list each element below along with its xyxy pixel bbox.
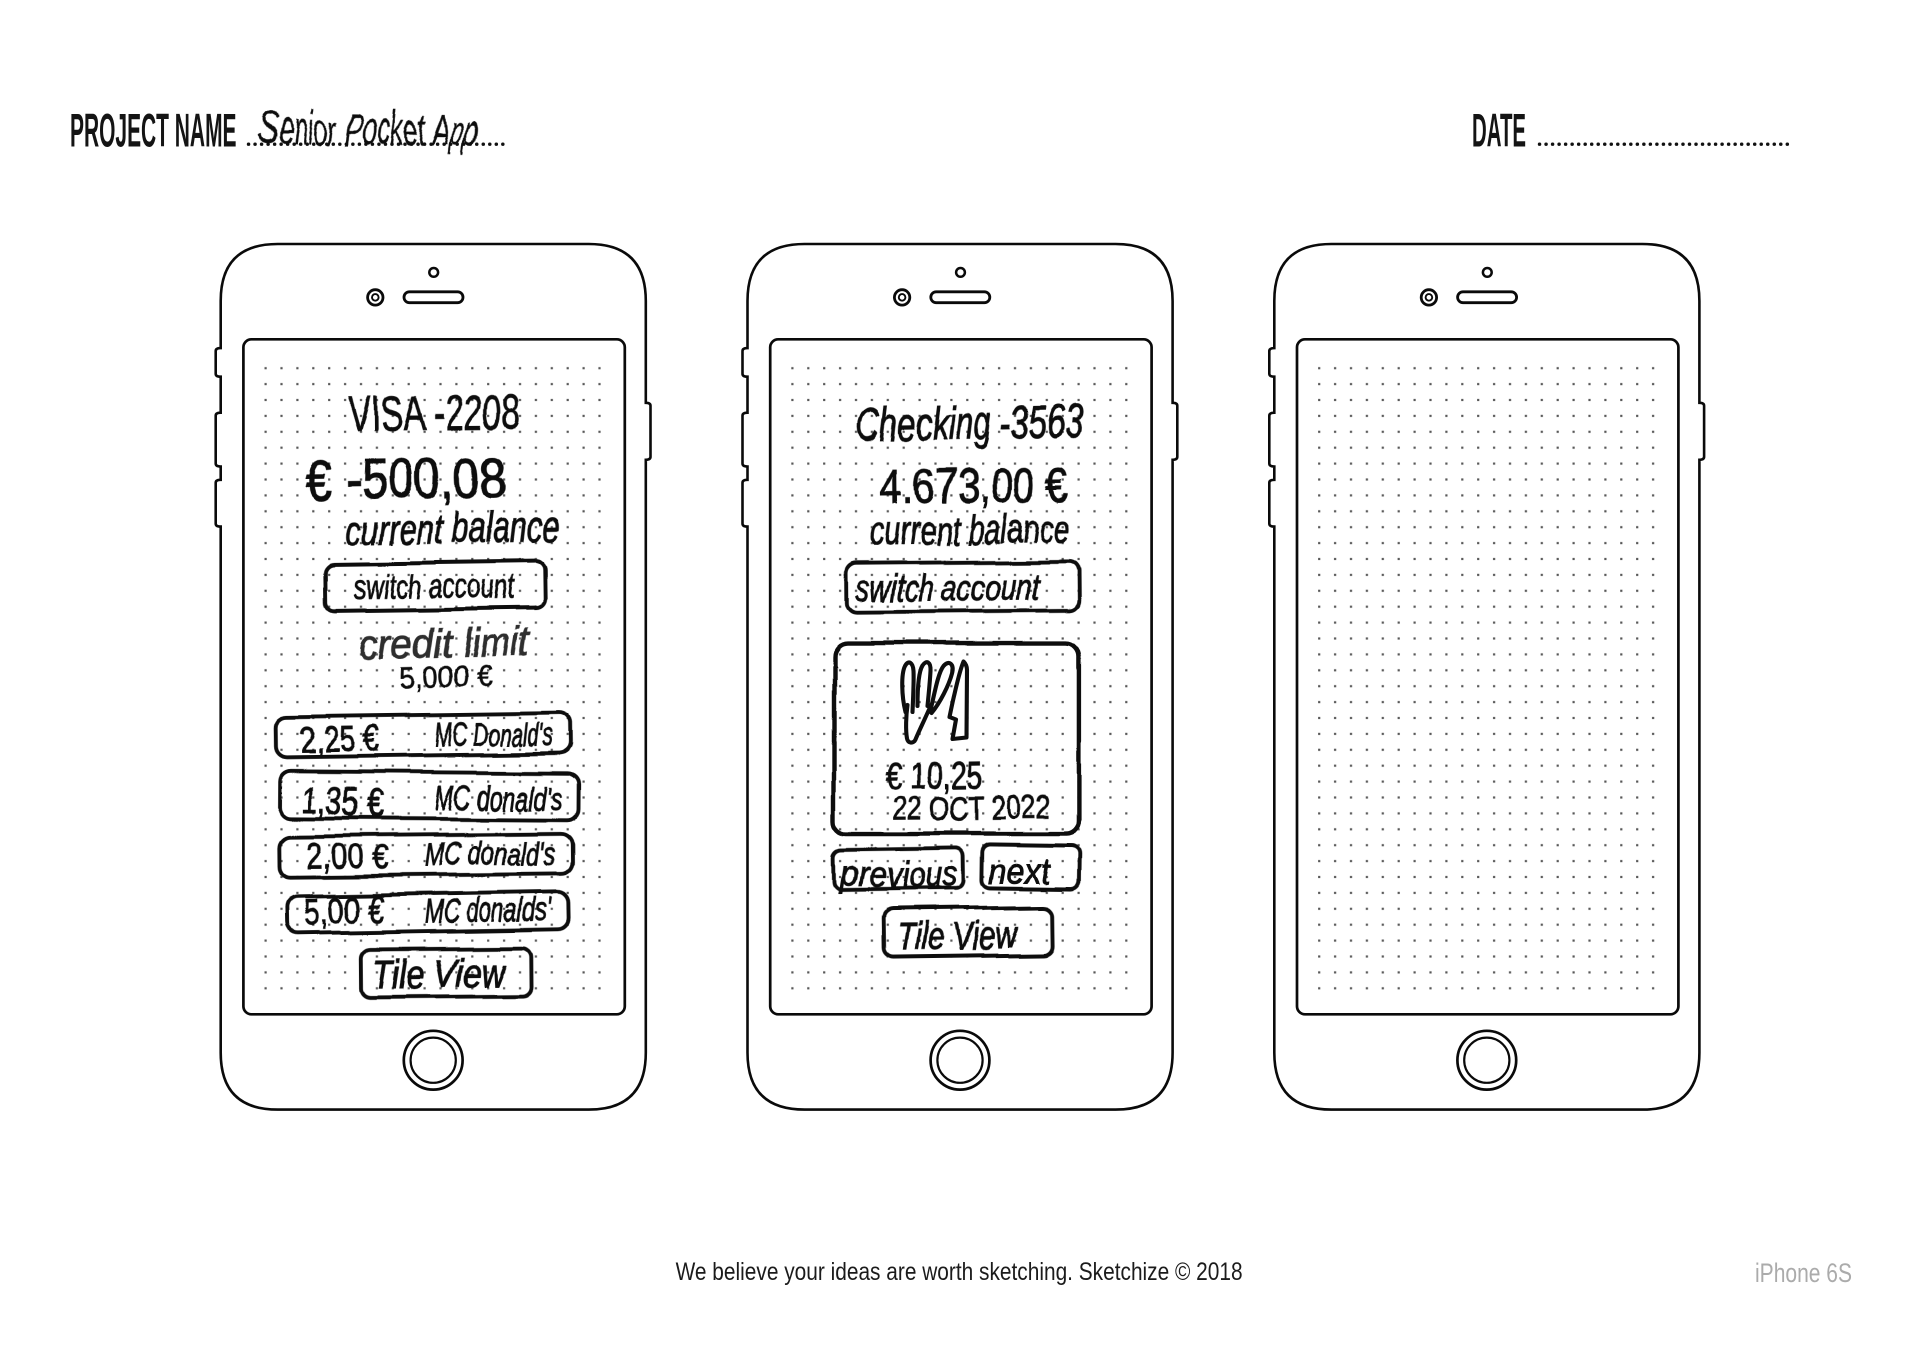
svg-text:We believe your ideas are wort: We believe your ideas are worth sketchin… bbox=[676, 1258, 1243, 1286]
svg-text:MC Donald's: MC Donald's bbox=[435, 715, 554, 754]
svg-text:PROJECT NAME: PROJECT NAME bbox=[70, 103, 237, 156]
svg-text:1,35 €: 1,35 € bbox=[302, 781, 384, 823]
svg-text:€ -500,08: € -500,08 bbox=[305, 446, 507, 512]
svg-text:MC donalds': MC donalds' bbox=[424, 890, 552, 929]
svg-text:iPhone 6S: iPhone 6S bbox=[1755, 1258, 1852, 1288]
svg-text:DATE: DATE bbox=[1472, 103, 1526, 156]
svg-text:5,00 €: 5,00 € bbox=[303, 890, 385, 932]
svg-text:Tile View: Tile View bbox=[896, 914, 1020, 958]
svg-text:Checking -3563: Checking -3563 bbox=[856, 394, 1083, 451]
svg-text:current balance: current balance bbox=[871, 506, 1069, 554]
svg-text:switch account: switch account bbox=[354, 567, 516, 607]
svg-text:2,00 €: 2,00 € bbox=[307, 836, 389, 878]
svg-text:Tile View: Tile View bbox=[373, 953, 507, 997]
svg-text:22 OCT 2022: 22 OCT 2022 bbox=[892, 789, 1049, 827]
svg-text:MC donald's: MC donald's bbox=[425, 835, 556, 873]
svg-text:MC donald's: MC donald's bbox=[435, 780, 562, 818]
svg-text:Senior Pocket App: Senior Pocket App bbox=[260, 101, 480, 158]
svg-text:previous: previous bbox=[840, 852, 958, 894]
svg-text:current balance: current balance bbox=[344, 502, 561, 554]
svg-text:5,000 €: 5,000 € bbox=[398, 658, 492, 695]
svg-text:VISA -2208: VISA -2208 bbox=[348, 386, 520, 441]
svg-text:switch account: switch account bbox=[855, 567, 1041, 609]
svg-text:next: next bbox=[988, 851, 1050, 892]
svg-text:2,25 €: 2,25 € bbox=[300, 717, 381, 759]
